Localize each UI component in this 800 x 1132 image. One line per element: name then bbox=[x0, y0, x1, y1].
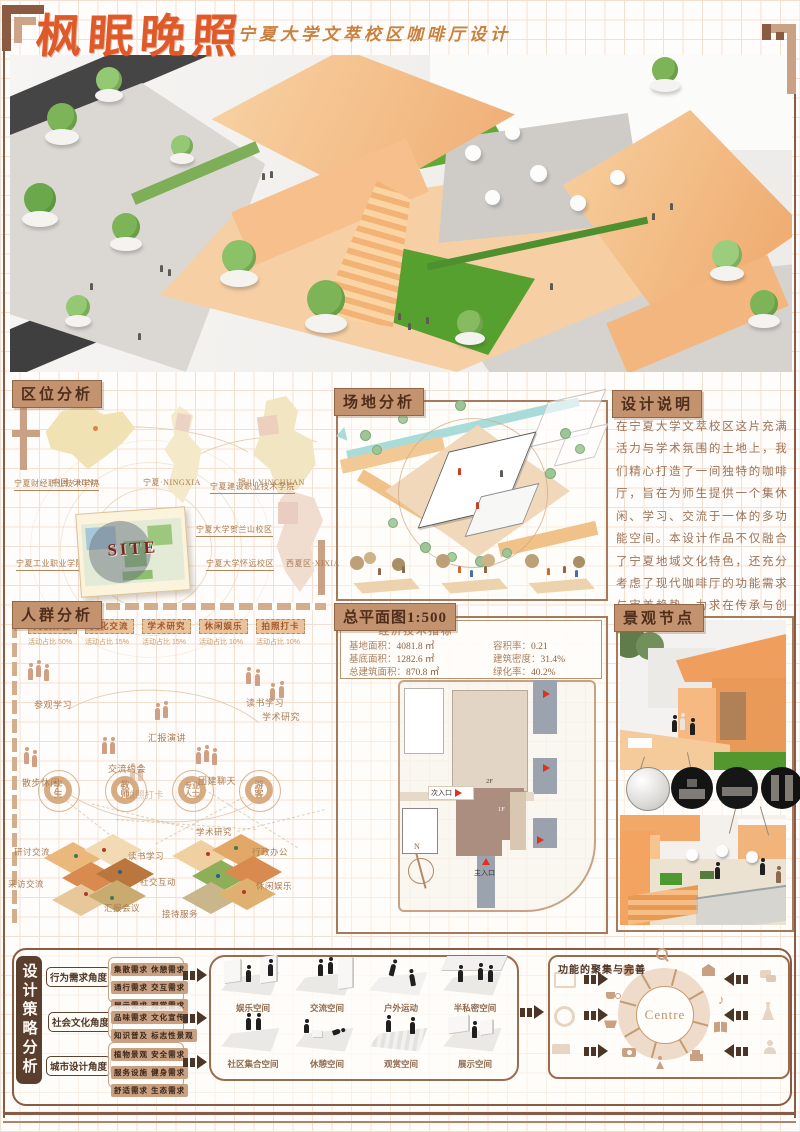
chat-icon-faded bbox=[760, 970, 776, 982]
section-header-crowd: 人群分析 bbox=[12, 601, 102, 629]
axon-label: 休闲娱乐 bbox=[256, 880, 292, 892]
indicator-value: 870.8 ㎡ bbox=[406, 668, 439, 678]
arrow-right bbox=[183, 1011, 207, 1025]
group-circle-label: 游客 bbox=[245, 776, 273, 804]
arrow-right bbox=[183, 968, 207, 982]
building-deck bbox=[510, 792, 526, 850]
floor-label: 2F bbox=[486, 778, 493, 785]
person-figure-red bbox=[458, 468, 461, 475]
activity-ratio: 活动占比 10% bbox=[256, 637, 300, 647]
activity-label: 团建聊天 bbox=[198, 774, 236, 787]
context-building-outline bbox=[404, 688, 444, 754]
location-ornament bbox=[12, 430, 40, 437]
centre-label: Centre bbox=[645, 1007, 686, 1023]
map-yinchuan-highlight bbox=[257, 415, 279, 437]
umbrella bbox=[570, 195, 586, 211]
person-figure bbox=[160, 265, 163, 272]
vignette bbox=[430, 552, 512, 596]
location-ornament bbox=[20, 404, 27, 470]
need-item: 集散需求 休憩需求 bbox=[111, 963, 188, 976]
tree-dot bbox=[360, 430, 371, 441]
place-label: 西夏区·XIXIA bbox=[286, 558, 340, 569]
activity-label: 学术研究 bbox=[262, 710, 300, 723]
entrance-arrow bbox=[455, 789, 462, 797]
person-figure bbox=[90, 283, 93, 290]
person-figure bbox=[262, 173, 265, 180]
centre-circle: Centre bbox=[636, 986, 694, 1044]
detail-photo-lantern bbox=[761, 767, 800, 809]
activity-ratio: 活动占比 10% bbox=[199, 637, 243, 647]
axon-label: 汇报会议 bbox=[104, 902, 140, 914]
space-label: 观赏空间 bbox=[366, 1058, 436, 1070]
map-label: 宁夏·NINGXIA bbox=[143, 477, 201, 488]
landscape-photo-plaza bbox=[620, 815, 786, 925]
need-item: 品味需求 文化宣传 bbox=[111, 1011, 188, 1024]
strategy-title-box: 设计策略分析 bbox=[16, 956, 42, 1084]
site-card: SITE bbox=[75, 506, 191, 597]
space-label: 户外运动 bbox=[366, 1002, 436, 1014]
arrow-right bbox=[584, 1008, 608, 1022]
person-figure bbox=[398, 313, 401, 320]
floor-label: 1F bbox=[498, 806, 505, 813]
disc-icon-faded bbox=[554, 1006, 575, 1027]
arrow-right bbox=[520, 1005, 544, 1019]
activity-label: 散步休闲 bbox=[22, 776, 60, 789]
activity-ratio: 活动占比 15% bbox=[142, 637, 186, 647]
map-china-marker bbox=[93, 426, 98, 431]
activity-label: 汇报演讲 bbox=[148, 731, 186, 744]
umbrella bbox=[610, 170, 625, 185]
person-figure-red bbox=[476, 502, 479, 509]
person-figure bbox=[270, 171, 273, 178]
indicator-label: 总建筑面积： bbox=[349, 668, 406, 678]
corner-ornament-topright bbox=[750, 18, 800, 108]
indicator-label: 绿化率： bbox=[493, 668, 531, 678]
space-label: 半私密空间 bbox=[440, 1002, 510, 1014]
activity-label: 交流约会 bbox=[108, 762, 146, 775]
space-diagram-rest bbox=[292, 1016, 362, 1056]
vignette bbox=[342, 552, 424, 596]
printer-icon bbox=[690, 1050, 703, 1061]
place-label: 宁夏财经职业技术学院 bbox=[14, 478, 99, 491]
place-label: 宁夏建设职业技术学院 bbox=[210, 481, 295, 494]
arrow-left bbox=[724, 1008, 750, 1022]
map-xixia-highlight bbox=[278, 502, 298, 524]
secondary-entrance-label: 次入口 bbox=[431, 788, 452, 798]
umbrella bbox=[505, 125, 520, 140]
detail-photo-furniture bbox=[671, 767, 713, 809]
axon-label: 行政办公 bbox=[252, 846, 288, 858]
axon-label: 社交互动 bbox=[140, 876, 176, 888]
page-title: 枫眠晚照 bbox=[34, 0, 247, 66]
arrow-right bbox=[584, 972, 608, 986]
secondary-entrance: 次入口 bbox=[428, 786, 474, 800]
person-figure bbox=[652, 213, 655, 220]
arrow-right bbox=[584, 1044, 608, 1058]
axon-label: 采访交流 bbox=[8, 878, 44, 890]
section-header-landscape: 景观节点 bbox=[614, 604, 704, 632]
umbrella bbox=[485, 190, 500, 205]
space-diagram-exhibit bbox=[440, 1016, 510, 1056]
space-diagram-semiprivate bbox=[440, 962, 510, 1002]
frame-bottom-2 bbox=[3, 1121, 796, 1123]
building-upper-deck bbox=[452, 690, 528, 792]
strategy-needs: 品味需求 文化宣传 知识普及 标志性景观 bbox=[108, 1005, 184, 1039]
detail-photo-sofa bbox=[716, 767, 758, 809]
camera-icon bbox=[622, 1048, 636, 1057]
space-diagram-viewing bbox=[366, 1016, 436, 1056]
frame-bottom bbox=[3, 1112, 796, 1115]
vignette bbox=[517, 552, 599, 596]
crowd-panel-strip bbox=[106, 603, 326, 610]
need-item: 舒适需求 生态需求 bbox=[111, 1084, 188, 1097]
space-label: 休憩空间 bbox=[292, 1058, 362, 1070]
activity-label: 读书学习 bbox=[246, 696, 284, 709]
axon-label: 接待服务 bbox=[162, 908, 198, 920]
sofa-icon-faded bbox=[552, 1044, 570, 1054]
need-item: 通行需求 交互需求 bbox=[111, 981, 188, 994]
section-header-location: 区位分析 bbox=[12, 380, 102, 408]
activity-tag: 休闲娱乐 bbox=[199, 619, 248, 634]
indicator-value: 40.2% bbox=[531, 668, 556, 678]
need-item: 知识普及 标志性景观 bbox=[111, 1029, 197, 1042]
arrow-right bbox=[183, 1055, 207, 1069]
map-ningxia-highlight bbox=[175, 413, 192, 432]
context-building-outline bbox=[402, 808, 438, 854]
entrance-arrow bbox=[537, 836, 544, 844]
user-icon-faded bbox=[764, 1040, 776, 1054]
search-icon bbox=[655, 947, 669, 961]
frame-left bbox=[3, 30, 5, 1118]
section-header-site-analysis: 场地分析 bbox=[334, 388, 424, 416]
axon-label: 学术研究 bbox=[196, 826, 232, 838]
strategy-angle: 社会文化角度 bbox=[48, 1012, 113, 1032]
person-icon bbox=[655, 1056, 665, 1069]
activity-ratio: 活动占比 15% bbox=[85, 637, 129, 647]
road-band bbox=[533, 680, 557, 734]
space-diagram-exchange bbox=[292, 962, 362, 1002]
space-diagram-outdoor bbox=[366, 962, 436, 1002]
space-label: 交流空间 bbox=[292, 1002, 362, 1014]
person-figure bbox=[138, 333, 141, 340]
place-label: 宁夏大学贺兰山校区 bbox=[196, 524, 273, 537]
tree-dot bbox=[372, 445, 382, 455]
book-icon bbox=[714, 1022, 728, 1032]
place-label: 宁夏工业职业学院 bbox=[16, 558, 84, 571]
umbrella bbox=[530, 165, 547, 182]
arrow-left bbox=[724, 972, 750, 986]
strategy-title: 设计策略分析 bbox=[19, 963, 40, 1077]
entrance-arrow bbox=[543, 690, 550, 698]
tree-dot bbox=[388, 518, 398, 528]
person-figure bbox=[426, 317, 429, 324]
activity-ratio: 活动占比 50% bbox=[28, 637, 72, 647]
main-entrance-marker bbox=[482, 858, 490, 865]
need-item: 服务设施 健身需求 bbox=[111, 1066, 188, 1079]
strategy-angle: 行为需求角度 bbox=[46, 967, 111, 987]
strategy-needs: 植物景观 安全需求 服务设施 健身需求 舒适需求 生态需求 bbox=[108, 1042, 184, 1088]
space-diagram-entertainment bbox=[218, 962, 288, 1002]
place-label: 宁夏大学怀远校区 bbox=[206, 558, 274, 571]
person-figure bbox=[550, 283, 553, 290]
design-notes-body: 在宁夏大学文萃校区这片充满活力与学术氛围的土地上，我们精心打造了一间独特的咖啡厅… bbox=[616, 416, 788, 596]
space-label: 展示空间 bbox=[440, 1058, 510, 1070]
poster: 枫眠晚照 宁夏大学文萃校区咖啡厅设计 bbox=[0, 0, 800, 1132]
page-subtitle: 宁夏大学文萃校区咖啡厅设计 bbox=[238, 20, 511, 45]
activity-tag: 拍照打卡 bbox=[256, 619, 305, 634]
main-entrance-label: 主入口 bbox=[474, 868, 495, 878]
coffee-icon bbox=[606, 990, 618, 999]
tree-dot bbox=[560, 428, 571, 439]
need-item: 植物景观 安全需求 bbox=[111, 1048, 188, 1061]
space-label: 社区集合空间 bbox=[214, 1058, 292, 1070]
space-label: 娱乐空间 bbox=[218, 1002, 288, 1014]
tree-dot bbox=[575, 444, 585, 454]
axon-label: 研讨交流 bbox=[14, 846, 50, 858]
strategy-angle: 城市设计角度 bbox=[46, 1056, 111, 1076]
activity-tag: 学术研究 bbox=[142, 619, 191, 634]
music-icon: ♪ bbox=[718, 992, 725, 1008]
person-figure bbox=[168, 269, 171, 276]
umbrella bbox=[465, 145, 481, 161]
axon-label: 读书学习 bbox=[128, 850, 164, 862]
north-label: N bbox=[414, 842, 420, 851]
detail-photo-material bbox=[626, 767, 670, 811]
entrance-arrow bbox=[543, 764, 550, 772]
activity-label: 拍照打卡 bbox=[126, 788, 164, 801]
tree-dot bbox=[545, 468, 556, 479]
strategy-needs: 集散需求 休憩需求 通行需求 交互需求 展示需求 观赏需求 bbox=[108, 957, 184, 1003]
space-diagram-community bbox=[218, 1016, 288, 1056]
main-render bbox=[10, 55, 792, 372]
tree-dot bbox=[455, 400, 466, 411]
arrow-left bbox=[724, 1044, 750, 1058]
person-figure bbox=[408, 323, 411, 330]
section-header-master-plan: 总平面图1:500 bbox=[334, 603, 456, 631]
activity-label: 参观学习 bbox=[34, 698, 72, 711]
landscape-photo-terrace bbox=[620, 620, 786, 770]
frame-right bbox=[794, 30, 796, 1118]
person-figure bbox=[500, 470, 503, 477]
person-figure bbox=[670, 203, 673, 210]
building-mass bbox=[456, 826, 502, 856]
section-header-design-notes: 设计说明 bbox=[612, 390, 702, 418]
